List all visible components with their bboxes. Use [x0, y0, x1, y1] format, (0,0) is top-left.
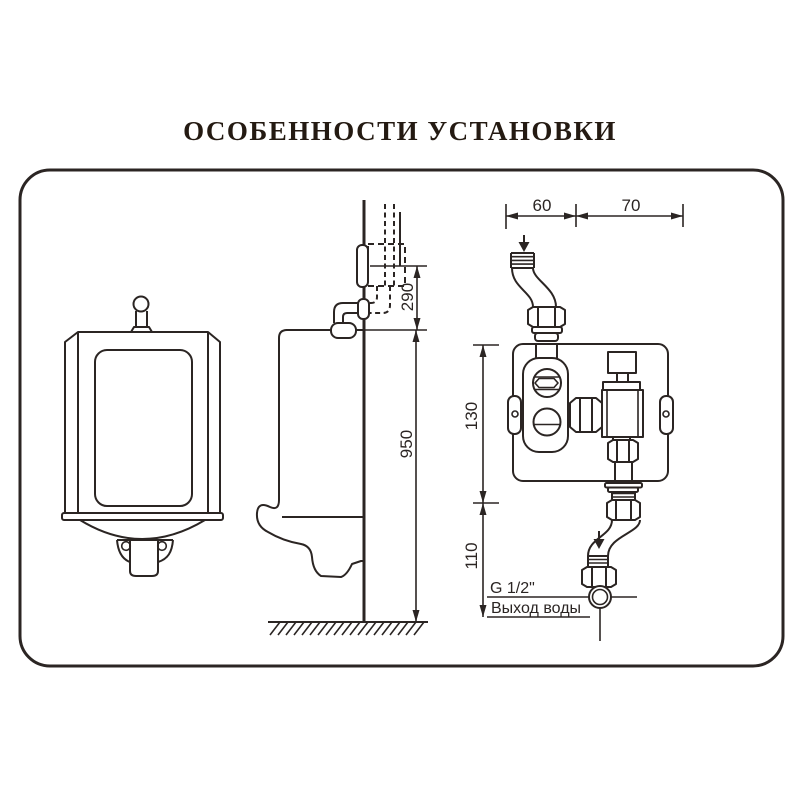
outlet-thread — [588, 556, 608, 567]
hanger-ring — [134, 297, 149, 312]
hex-nut — [528, 307, 565, 327]
inlet-stem — [136, 311, 147, 327]
urinal-body — [65, 332, 220, 513]
urinal-screen — [95, 350, 192, 506]
hex-nut — [607, 500, 640, 520]
bowl-curve — [80, 520, 205, 539]
urinal-rim — [62, 513, 223, 520]
outlet-caption: Выход воды — [491, 600, 581, 617]
floor-hatching — [270, 622, 424, 635]
dim-label-130: 130 — [462, 402, 481, 430]
hex-coupling — [570, 398, 602, 432]
water-inlet-arrow-icon — [519, 235, 530, 252]
control-valve-body — [523, 358, 568, 452]
inlet-spud — [331, 323, 356, 338]
mounting-ear-right — [660, 396, 673, 434]
urinal-side-view: 290 950 — [257, 200, 428, 635]
dim-label-290: 290 — [398, 283, 417, 311]
dimension-130-110: 130 110 — [462, 345, 499, 617]
shutoff-screw — [534, 409, 561, 436]
drain-outlet — [117, 540, 173, 576]
dimension-950: 950 — [397, 330, 420, 622]
dim-label-60: 60 — [533, 196, 552, 215]
urinal-profile — [257, 330, 364, 577]
supply-pipe — [334, 303, 358, 323]
inlet-offset-pipe — [512, 268, 533, 307]
wall-escutcheon — [358, 299, 369, 319]
urinal-front-view — [62, 297, 223, 577]
mounting-ear-left — [508, 396, 521, 434]
dim-label-110: 110 — [462, 542, 481, 569]
wall-bracket — [357, 245, 368, 287]
outlet-thread-label: G 1/2" — [490, 580, 535, 597]
dim-label-950: 950 — [397, 430, 416, 458]
hex-nut — [608, 440, 638, 462]
dimension-290: 290 — [370, 266, 427, 330]
solenoid-valve — [602, 352, 643, 437]
installation-diagram: 290 950 60 70 — [0, 0, 800, 800]
dim-label-70: 70 — [622, 196, 641, 215]
adjuster-screw — [533, 369, 561, 397]
dimension-60-70: 60 70 — [506, 196, 683, 229]
flush-valve-unit: 60 70 — [462, 196, 683, 641]
hex-nut — [582, 567, 616, 587]
